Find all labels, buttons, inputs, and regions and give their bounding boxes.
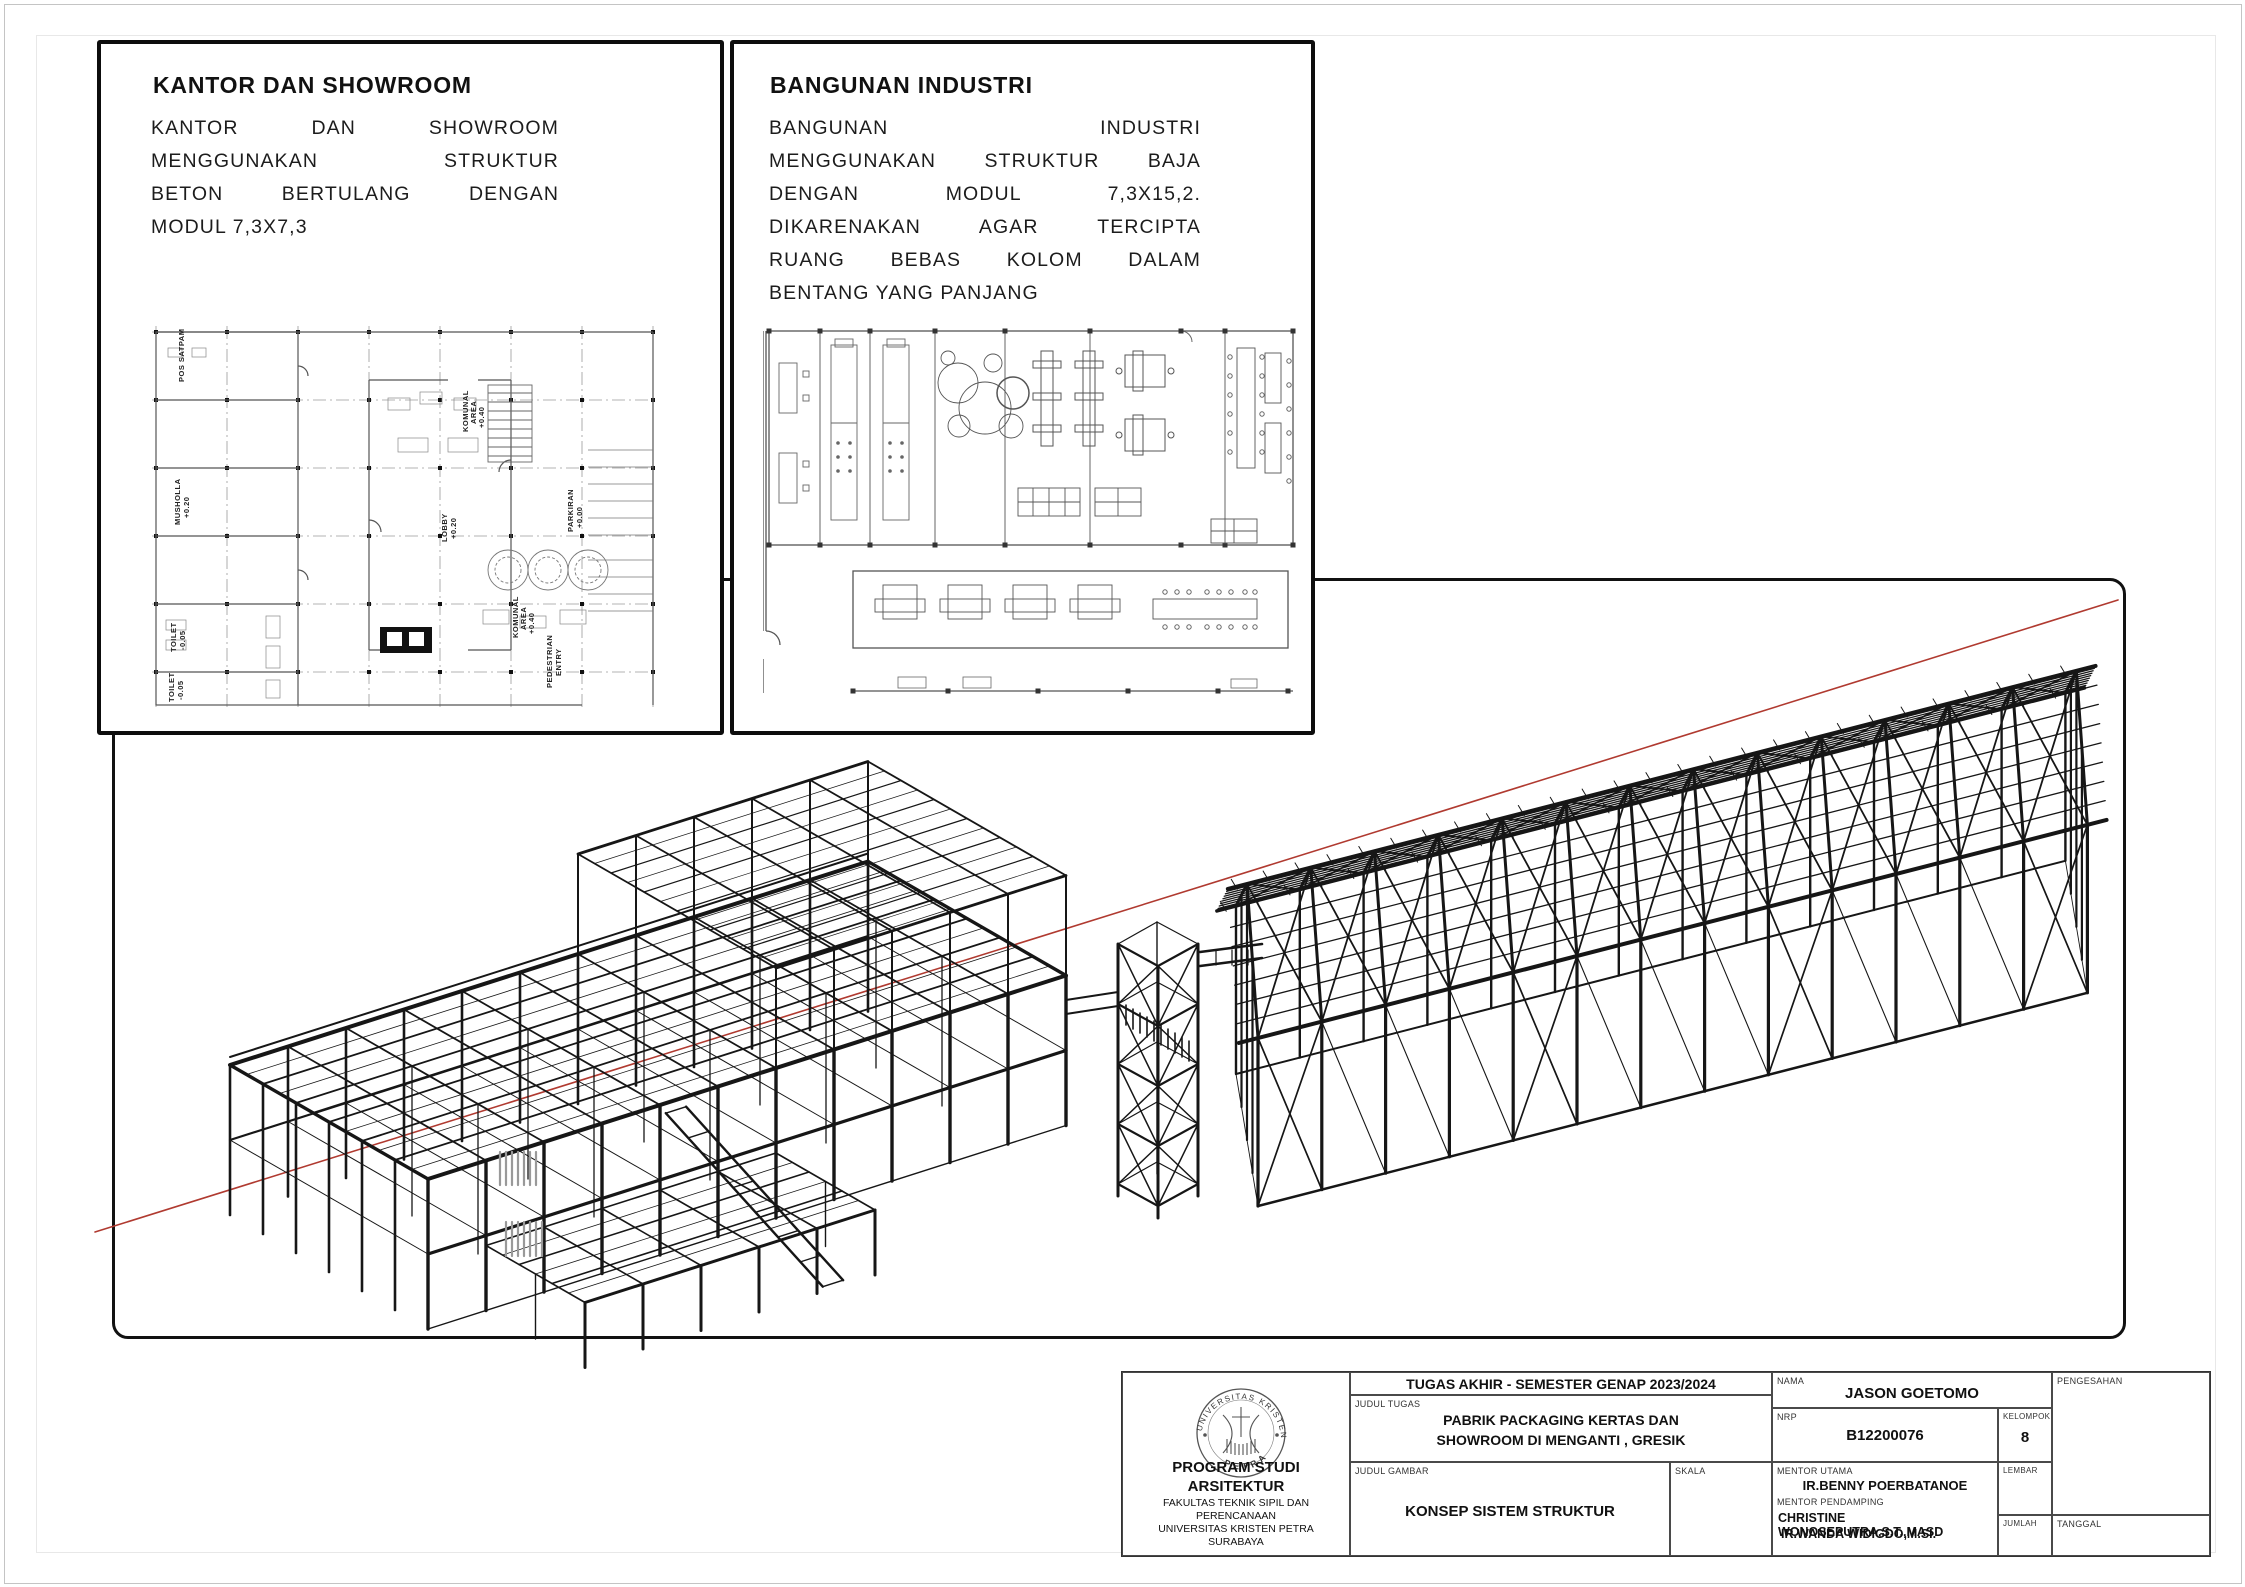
- drawing-sheet: KANTOR DAN SHOWROOM KANTOR DAN SHOWROOM …: [0, 0, 2245, 1587]
- panel-industri-body: BANGUNAN INDUSTRI MENGGUNAKAN STRUKTUR B…: [769, 112, 1201, 310]
- kelompok-value: 8: [1999, 1429, 2051, 1446]
- mentor-cell: MENTOR UTAMA IR.BENNY POERBATANOE MENTOR…: [1772, 1462, 1998, 1556]
- mentor-utama-value: IR.BENNY POERBATANOE: [1773, 1478, 1997, 1493]
- svg-text:-0.05: -0.05: [176, 680, 185, 700]
- parking-stripes: [588, 450, 653, 611]
- panel-kantor-title: KANTOR DAN SHOWROOM: [153, 72, 472, 99]
- judul-gambar-cell: JUDUL GAMBAR KONSEP SISTEM STRUKTUR: [1350, 1462, 1670, 1556]
- judul-gambar-value: KONSEP SISTEM STRUKTUR: [1351, 1503, 1669, 1520]
- svg-text:+0.00: +0.00: [575, 507, 584, 528]
- svg-text:+0.40: +0.40: [527, 613, 536, 634]
- nama-cell: NAMA JASON GOETOMO: [1772, 1372, 2052, 1408]
- label-toilet-1: TOILET: [169, 622, 178, 652]
- title-block: UNIVERSITAS KRISTEN PETRA PROGRAM STUDI …: [1122, 1372, 2210, 1556]
- kantor-floor-plan: POS SATPAM MUSHOLLA +0.20 TOILET -0.05 T…: [148, 320, 660, 717]
- logo-cross-icon: [1223, 1407, 1259, 1455]
- svg-text:+0.40: +0.40: [477, 407, 486, 428]
- lembar-cell: LEMBAR: [1998, 1462, 2052, 1515]
- panel-kantor-body: KANTOR DAN SHOWROOM MENGGUNAKAN STRUKTUR…: [151, 112, 559, 244]
- label-parkiran: PARKIRAN: [566, 489, 575, 532]
- label-musholla: MUSHOLLA: [173, 478, 182, 525]
- industri-floor-plan: [763, 323, 1301, 708]
- tanggal-cell: TANGGAL: [2052, 1515, 2210, 1556]
- project-header: TUGAS AKHIR - SEMESTER GENAP 2023/2024: [1351, 1376, 1771, 1392]
- skala-cell: SKALA: [1670, 1462, 1772, 1556]
- institution-text: PROGRAM STUDI ARSITEKTUR FAKULTAS TEKNIK…: [1123, 1459, 1349, 1549]
- institution-cell: UNIVERSITAS KRISTEN PETRA PROGRAM STUDI …: [1122, 1372, 1350, 1556]
- elevator-core: [380, 627, 432, 653]
- judul-tugas-cell: JUDUL TUGAS PABRIK PACKAGING KERTAS DAN …: [1350, 1395, 1772, 1462]
- svg-text:+0.20: +0.20: [182, 497, 191, 518]
- lobby-trees: [488, 550, 608, 590]
- pengesahan-cell: PENGESAHAN: [2052, 1372, 2210, 1515]
- mentor-pendamping-value-2: IR.WANDA WIDIGDO,M.SI.: [1773, 1527, 1997, 1541]
- label-lobby: LOBBY: [440, 513, 449, 542]
- label-pedestrian-entry: PEDESTRIAN: [545, 635, 554, 688]
- nama-value: JASON GOETOMO: [1773, 1385, 2051, 1402]
- nrp-cell: NRP B12200076: [1772, 1408, 1998, 1462]
- judul-tugas-value: PABRIK PACKAGING KERTAS DAN: [1351, 1412, 1771, 1428]
- svg-text:-0.05: -0.05: [178, 630, 187, 650]
- stairs: [488, 385, 532, 462]
- nrp-value: B12200076: [1773, 1427, 1997, 1444]
- label-toilet-2: TOILET: [167, 672, 176, 702]
- svg-text:+0.20: +0.20: [449, 518, 458, 539]
- project-header-cell: TUGAS AKHIR - SEMESTER GENAP 2023/2024: [1350, 1372, 1772, 1395]
- svg-text:ENTRY: ENTRY: [554, 648, 563, 676]
- panel-industri-title: BANGUNAN INDUSTRI: [770, 72, 1033, 99]
- label-pos-satpam: POS SATPAM: [177, 329, 186, 382]
- panel-bangunan-industri: BANGUNAN INDUSTRI BANGUNAN INDUSTRI MENG…: [730, 40, 1315, 735]
- paper-rolls: [938, 351, 1029, 438]
- jumlah-cell: JUMLAH: [1998, 1515, 2052, 1556]
- kelompok-cell: KELOMPOK 8: [1998, 1408, 2052, 1462]
- panel-kantor-showroom: KANTOR DAN SHOWROOM KANTOR DAN SHOWROOM …: [97, 40, 724, 735]
